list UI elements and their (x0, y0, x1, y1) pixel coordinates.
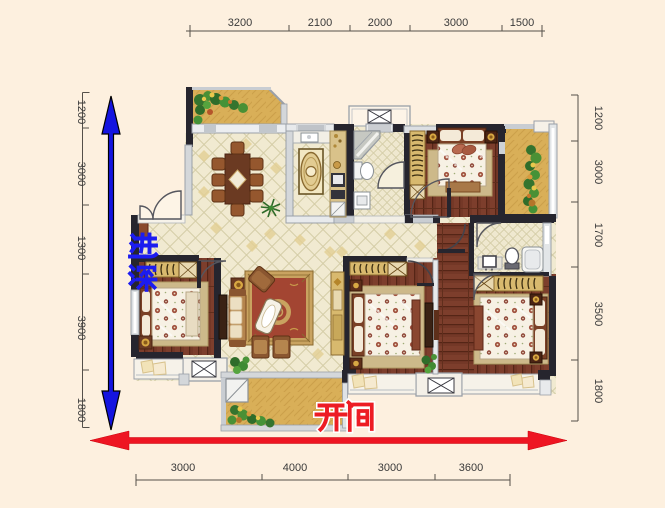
svg-text:3000: 3000 (378, 462, 402, 474)
svg-text:3900: 3900 (75, 316, 87, 340)
svg-text:3600: 3600 (459, 462, 483, 474)
svg-text:1800: 1800 (592, 379, 604, 403)
svg-text:2100: 2100 (308, 17, 332, 29)
svg-text:3000: 3000 (444, 17, 468, 29)
svg-text:1200: 1200 (592, 106, 604, 130)
svg-text:3000: 3000 (171, 462, 195, 474)
svg-text:3500: 3500 (592, 302, 604, 326)
svg-text:2000: 2000 (368, 17, 392, 29)
svg-text:1500: 1500 (510, 17, 534, 29)
svg-text:1300: 1300 (75, 236, 87, 260)
svg-text:1200: 1200 (75, 100, 87, 124)
svg-text:4000: 4000 (283, 462, 307, 474)
svg-text:3200: 3200 (228, 17, 252, 29)
svg-text:1700: 1700 (592, 223, 604, 247)
svg-text:1800: 1800 (75, 398, 87, 422)
svg-text:3000: 3000 (75, 162, 87, 186)
svg-text:3000: 3000 (592, 160, 604, 184)
